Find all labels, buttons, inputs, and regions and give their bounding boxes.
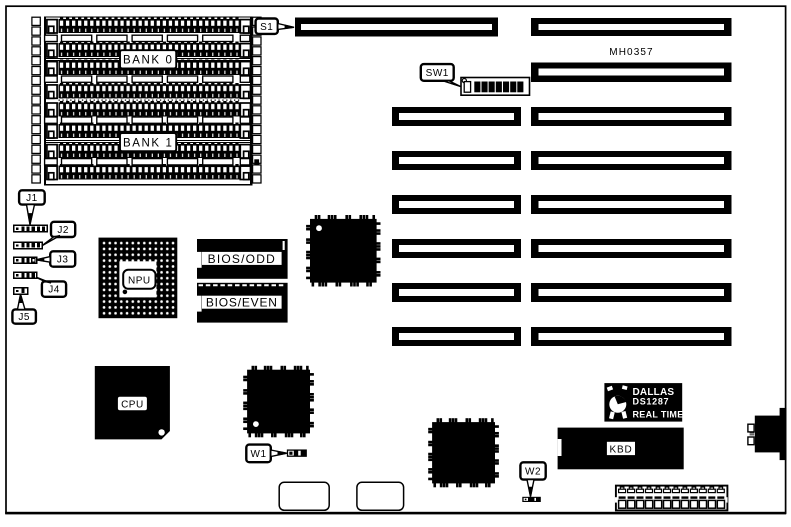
svg-text:W1: W1 (251, 449, 267, 460)
svg-text:W2: W2 (525, 467, 541, 478)
svg-text:DS1287: DS1287 (633, 396, 670, 406)
svg-text:BIOS/EVEN: BIOS/EVEN (206, 296, 278, 310)
svg-text:REAL TIME: REAL TIME (633, 409, 684, 419)
svg-text:SW1: SW1 (426, 68, 449, 79)
svg-text:J5: J5 (18, 312, 30, 323)
svg-text:J3: J3 (57, 255, 69, 266)
svg-text:BANK 1: BANK 1 (123, 137, 174, 149)
svg-text:CPU: CPU (121, 399, 144, 410)
svg-text:MH0357: MH0357 (609, 47, 653, 58)
svg-text:J2: J2 (57, 225, 69, 236)
svg-text:NPU: NPU (128, 275, 151, 286)
svg-text:KBD: KBD (610, 444, 633, 455)
svg-text:BIOS/ODD: BIOS/ODD (208, 252, 276, 266)
svg-text:S1: S1 (260, 22, 273, 33)
svg-text:J4: J4 (48, 285, 60, 296)
svg-text:J1: J1 (26, 193, 38, 204)
svg-text:BANK 0: BANK 0 (123, 55, 174, 67)
